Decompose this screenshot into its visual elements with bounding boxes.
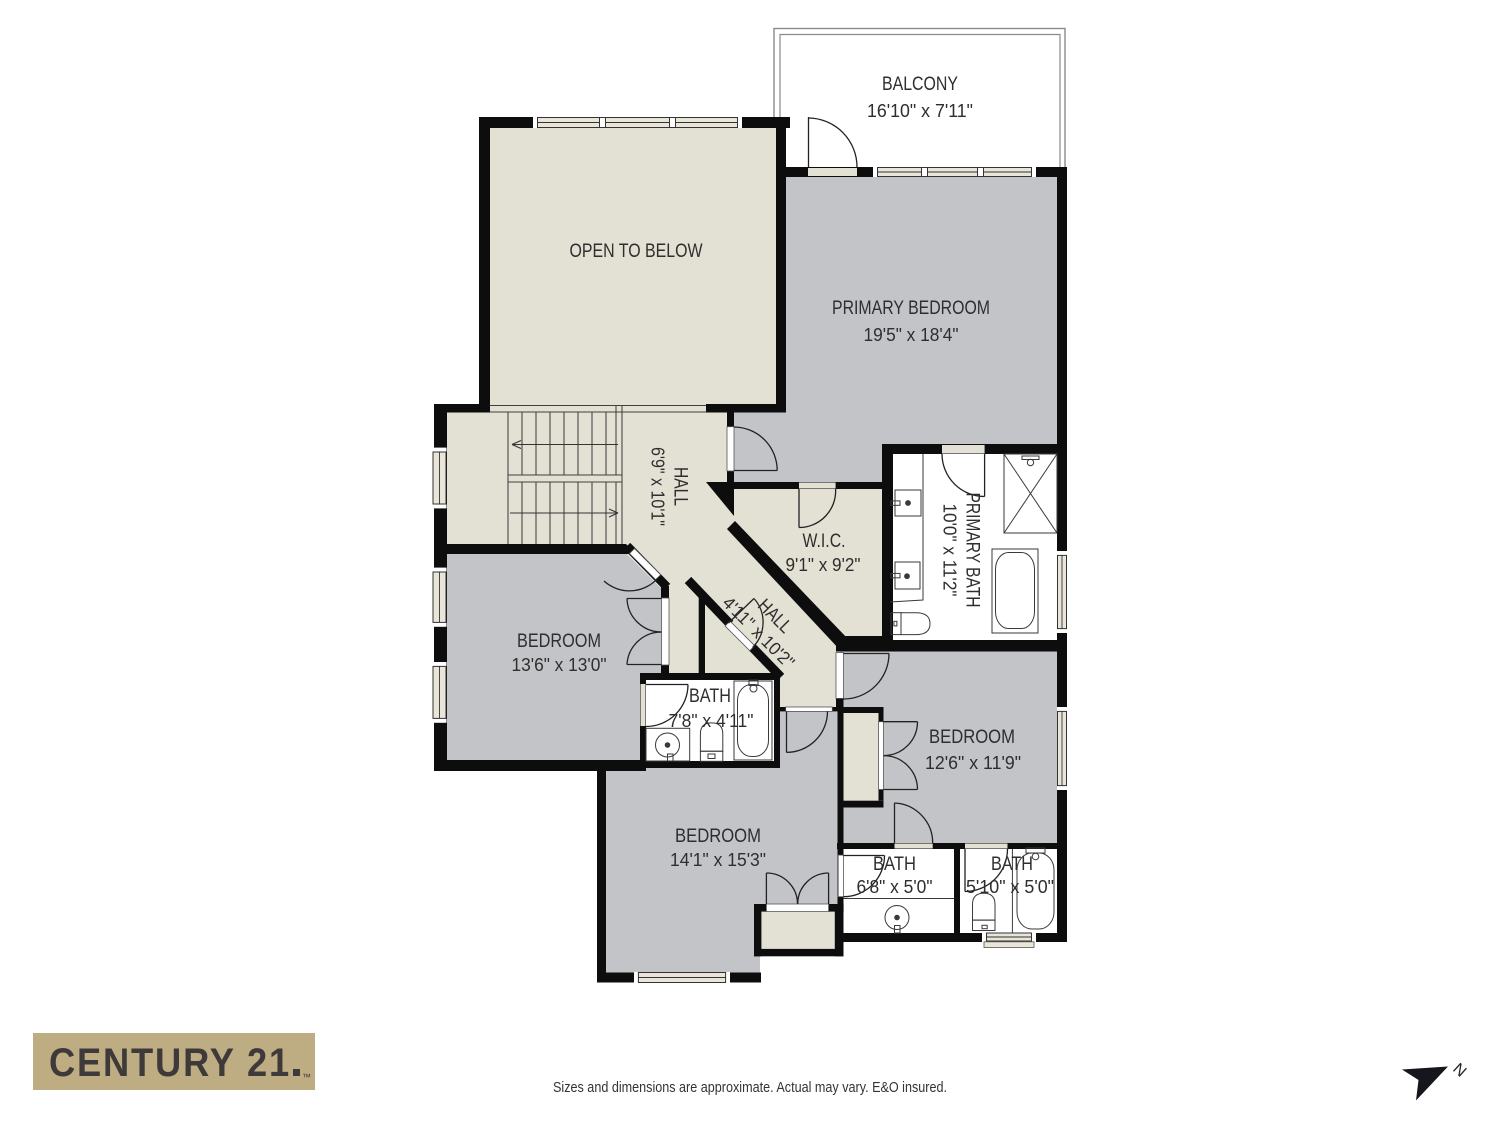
- svg-text:7'8" x 4'11": 7'8" x 4'11": [669, 711, 754, 731]
- svg-text:16'10" x 7'11": 16'10" x 7'11": [867, 101, 973, 121]
- svg-text:PRIMARY BEDROOM: PRIMARY BEDROOM: [832, 298, 990, 319]
- svg-text:CENTURY 21: CENTURY 21: [49, 1041, 291, 1085]
- svg-text:OPEN TO BELOW: OPEN TO BELOW: [570, 241, 703, 262]
- svg-text:BEDROOM: BEDROOM: [517, 631, 601, 652]
- svg-text:5'10" x 5'0": 5'10" x 5'0": [966, 877, 1054, 897]
- svg-text:6'9" x 10'1": 6'9" x 10'1": [648, 447, 668, 526]
- svg-text:14'1" x 15'3": 14'1" x 15'3": [670, 850, 766, 870]
- svg-text:BEDROOM: BEDROOM: [929, 727, 1015, 748]
- svg-text:12'6" x 11'9": 12'6" x 11'9": [925, 753, 1021, 773]
- svg-text:BATH: BATH: [873, 854, 916, 875]
- svg-text:Sizes and dimensions are appro: Sizes and dimensions are approximate. Ac…: [553, 1079, 947, 1096]
- svg-text:10'0" x 11'2": 10'0" x 11'2": [940, 504, 960, 597]
- svg-text:HALL: HALL: [670, 467, 691, 506]
- svg-text:PRIMARY BATH: PRIMARY BATH: [962, 493, 983, 608]
- svg-text:6'8" x 5'0": 6'8" x 5'0": [857, 877, 933, 897]
- svg-text:BEDROOM: BEDROOM: [675, 826, 761, 847]
- svg-text:9'1" x 9'2": 9'1" x 9'2": [786, 555, 861, 575]
- svg-text:BATH: BATH: [689, 686, 731, 707]
- svg-text:19'5" x 18'4": 19'5" x 18'4": [864, 325, 959, 345]
- svg-text:™: ™: [302, 1072, 311, 1082]
- svg-text:13'6" x 13'0": 13'6" x 13'0": [512, 655, 607, 675]
- svg-text:W.I.C.: W.I.C.: [803, 531, 846, 552]
- svg-text:BATH: BATH: [991, 854, 1033, 875]
- svg-text:BALCONY: BALCONY: [882, 74, 958, 95]
